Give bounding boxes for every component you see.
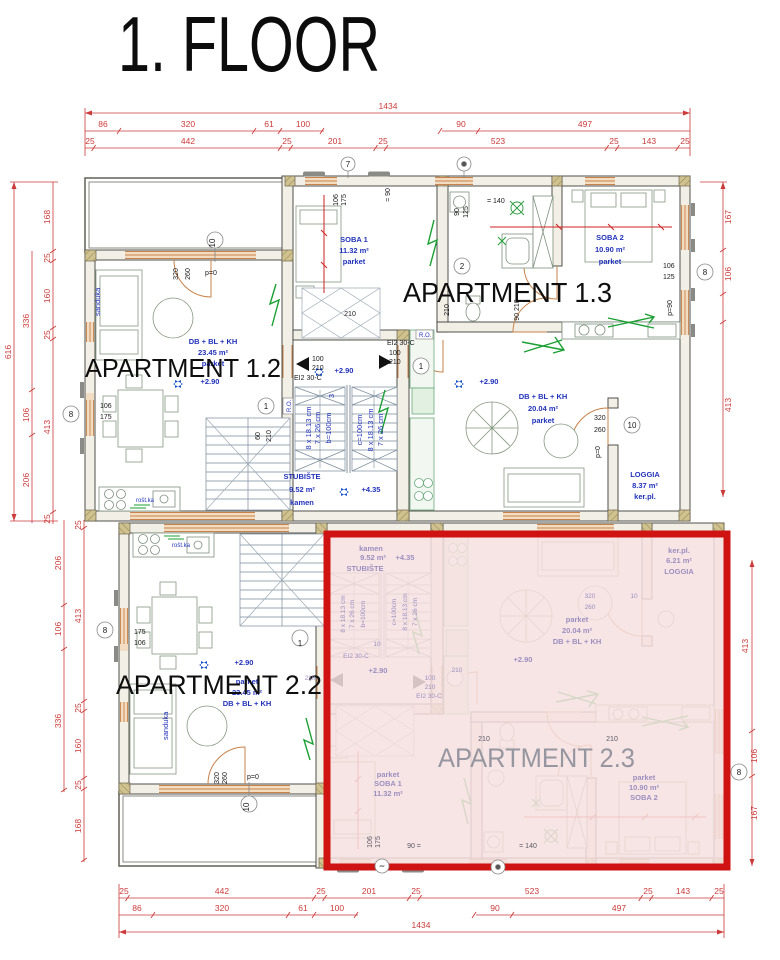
svg-text:167: 167 (723, 210, 733, 224)
svg-text:11.32 m²: 11.32 m² (339, 246, 369, 255)
svg-text:ker.pl.: ker.pl. (668, 546, 690, 555)
svg-text:20.04 m²: 20.04 m² (528, 404, 559, 413)
svg-text:DB + BL + KH: DB + BL + KH (189, 337, 238, 346)
svg-text:= 140: = 140 (519, 843, 537, 850)
svg-text:210: 210 (312, 365, 324, 372)
svg-text:8: 8 (69, 410, 74, 419)
svg-text:2: 2 (460, 262, 465, 271)
svg-text:1: 1 (419, 362, 424, 371)
svg-text:106: 106 (663, 263, 675, 270)
svg-text:sanduka: sanduka (93, 287, 102, 316)
svg-text:8: 8 (737, 768, 742, 777)
svg-text:9.52 m²: 9.52 m² (360, 553, 386, 562)
svg-text:143: 143 (676, 886, 690, 896)
svg-text:201: 201 (362, 886, 376, 896)
svg-text:260: 260 (585, 604, 596, 611)
svg-text:100: 100 (296, 119, 310, 129)
svg-text:parket: parket (633, 773, 656, 782)
svg-text:25: 25 (42, 253, 52, 263)
svg-text:61: 61 (298, 903, 308, 913)
svg-text:106: 106 (333, 194, 340, 206)
svg-text:106: 106 (53, 622, 63, 636)
svg-text:25: 25 (119, 886, 129, 896)
svg-text:SOBA 1: SOBA 1 (374, 779, 402, 788)
svg-text:1434: 1434 (412, 920, 431, 930)
svg-text:25: 25 (714, 886, 724, 896)
svg-text:8: 8 (703, 268, 708, 277)
svg-text:b=100cm: b=100cm (324, 412, 333, 443)
svg-text:p=0: p=0 (595, 446, 602, 458)
svg-text:175: 175 (375, 836, 382, 848)
svg-text:25: 25 (85, 136, 95, 146)
svg-text:61: 61 (264, 119, 274, 129)
svg-text:STUBIŠTE: STUBIŠTE (346, 564, 383, 573)
svg-text:336: 336 (21, 314, 31, 328)
svg-text:160: 160 (42, 289, 52, 303)
svg-text:8.37 m²: 8.37 m² (632, 481, 658, 490)
svg-text:p=0: p=0 (247, 774, 259, 781)
svg-text:DB + BL + KH: DB + BL + KH (223, 699, 272, 708)
svg-text:R.O.: R.O. (287, 399, 293, 412)
svg-text:90: 90 (490, 903, 500, 913)
svg-text:8 x 18.13 cm: 8 x 18.13 cm (402, 593, 409, 630)
svg-text:10: 10 (628, 421, 637, 430)
svg-text:b=100cm: b=100cm (360, 601, 367, 628)
svg-text:= 140: = 140 (487, 198, 505, 205)
svg-text:R.O.: R.O. (419, 333, 432, 339)
svg-text:7 x 26 cm: 7 x 26 cm (376, 414, 385, 447)
svg-text:10: 10 (373, 641, 381, 648)
svg-text:413: 413 (723, 398, 733, 412)
svg-text:25: 25 (42, 514, 52, 524)
svg-text:7 x 26 cm: 7 x 26 cm (412, 598, 419, 626)
svg-text:8 x 18.13 cm: 8 x 18.13 cm (366, 409, 375, 452)
svg-text:25: 25 (609, 136, 619, 146)
svg-text:APARTMENT 2.2: APARTMENT 2.2 (116, 670, 322, 700)
svg-text:1: 1 (264, 402, 269, 411)
svg-text:210: 210 (606, 736, 618, 743)
svg-text:DB + BL + KH: DB + BL + KH (519, 392, 568, 401)
svg-text:106: 106 (749, 749, 759, 763)
svg-text:106: 106 (100, 403, 112, 410)
svg-text:25: 25 (411, 886, 421, 896)
svg-text:106: 106 (134, 640, 146, 647)
svg-text:parket: parket (599, 257, 622, 266)
svg-text:168: 168 (42, 210, 52, 224)
svg-text:206: 206 (53, 556, 63, 570)
svg-text:86: 86 (132, 903, 142, 913)
svg-text:10: 10 (242, 802, 251, 811)
svg-text:125: 125 (463, 206, 470, 218)
svg-text:442: 442 (215, 886, 229, 896)
svg-text:8 x 18.13 cm: 8 x 18.13 cm (304, 407, 313, 450)
svg-text:106: 106 (21, 408, 31, 422)
svg-text:rošt.ka: rošt.ka (136, 498, 155, 504)
svg-text:7 x 26 cm: 7 x 26 cm (349, 600, 356, 628)
svg-text:8 x 18.13 cm: 8 x 18.13 cm (340, 595, 347, 632)
svg-text:143: 143 (642, 136, 656, 146)
svg-text:260: 260 (185, 268, 192, 280)
svg-text:25: 25 (680, 136, 690, 146)
svg-text:25: 25 (42, 330, 52, 340)
svg-text:25: 25 (282, 136, 292, 146)
svg-text:rošt.ka: rošt.ka (172, 543, 191, 549)
svg-text:8: 8 (103, 626, 108, 635)
svg-text:+2.90: +2.90 (335, 366, 354, 375)
svg-text:616: 616 (3, 345, 13, 359)
svg-text:90: 90 (454, 208, 461, 216)
svg-text:= 90: = 90 (385, 188, 392, 202)
svg-text:201: 201 (328, 136, 342, 146)
svg-text:LOGGIA: LOGGIA (664, 567, 694, 576)
svg-text:EI2 30-C: EI2 30-C (416, 693, 442, 700)
svg-text:160: 160 (73, 739, 83, 753)
svg-text:p=0: p=0 (205, 270, 217, 277)
svg-text:kamen: kamen (290, 498, 314, 507)
svg-text:320: 320 (594, 415, 606, 422)
svg-text:EI2 30-C: EI2 30-C (294, 375, 322, 382)
svg-text:125: 125 (663, 274, 675, 281)
svg-text:210: 210 (478, 736, 490, 743)
svg-text:175: 175 (341, 194, 348, 206)
svg-text:25: 25 (378, 136, 388, 146)
svg-text:parket: parket (532, 416, 555, 425)
svg-text:106: 106 (367, 836, 374, 848)
svg-text:SOBA 1: SOBA 1 (340, 235, 368, 244)
svg-text:p=90: p=90 (667, 300, 674, 316)
svg-text:c=100cm: c=100cm (355, 415, 364, 446)
svg-text:+2.90: +2.90 (514, 655, 533, 664)
svg-text:10: 10 (208, 238, 217, 247)
svg-text:+4.35: +4.35 (396, 553, 415, 562)
svg-text:210: 210 (305, 675, 316, 682)
svg-text:336: 336 (53, 714, 63, 728)
svg-text:3: 3 (327, 394, 336, 398)
svg-text:parket: parket (566, 615, 589, 624)
svg-text:APARTMENT 1.3: APARTMENT 1.3 (403, 277, 612, 308)
svg-text:6.21 m²: 6.21 m² (666, 556, 692, 565)
svg-text:175: 175 (134, 629, 146, 636)
svg-text:60: 60 (255, 432, 262, 440)
svg-text:DB + BL + KH: DB + BL + KH (553, 637, 602, 646)
svg-text:210: 210 (266, 430, 273, 442)
svg-text:parket: parket (377, 770, 400, 779)
svg-text:9.52 m²: 9.52 m² (289, 485, 315, 494)
svg-text:+2.90: +2.90 (235, 658, 254, 667)
svg-text:86: 86 (98, 119, 108, 129)
svg-text:90 =: 90 = (407, 843, 421, 850)
svg-text:EI2 30-C: EI2 30-C (387, 340, 415, 347)
svg-text:442: 442 (181, 136, 195, 146)
svg-text:523: 523 (491, 136, 505, 146)
svg-text:STUBIŠTE: STUBIŠTE (283, 472, 320, 481)
svg-text:168: 168 (73, 819, 83, 833)
svg-text:320: 320 (215, 903, 229, 913)
svg-text:parket: parket (343, 257, 366, 266)
svg-text:EI2 30-C: EI2 30-C (343, 653, 369, 660)
svg-text:210: 210 (425, 684, 436, 691)
svg-text:1434: 1434 (379, 101, 398, 111)
svg-text:320: 320 (181, 119, 195, 129)
svg-text:sanduka: sanduka (161, 711, 170, 740)
svg-text:260: 260 (222, 772, 229, 784)
svg-text:10: 10 (630, 593, 638, 600)
svg-text:10.90 m²: 10.90 m² (629, 783, 660, 792)
svg-text:APARTMENT 1.2: APARTMENT 1.2 (85, 353, 281, 383)
svg-text:413: 413 (740, 639, 750, 653)
svg-text:LOGGIA: LOGGIA (630, 470, 660, 479)
svg-text:206: 206 (21, 473, 31, 487)
svg-text:106: 106 (723, 267, 733, 281)
svg-text:c=100cm: c=100cm (391, 599, 398, 626)
svg-text:100: 100 (389, 350, 401, 357)
svg-text:320: 320 (214, 772, 221, 784)
svg-text:497: 497 (578, 119, 592, 129)
svg-text:25: 25 (73, 520, 83, 530)
svg-text:25: 25 (316, 886, 326, 896)
svg-text:25: 25 (643, 886, 653, 896)
svg-text:167: 167 (749, 806, 759, 820)
svg-text:+2.90: +2.90 (369, 666, 388, 675)
svg-text:APARTMENT 2.3: APARTMENT 2.3 (438, 743, 635, 773)
svg-text:90: 90 (456, 119, 466, 129)
svg-text:497: 497 (612, 903, 626, 913)
svg-text:413: 413 (73, 609, 83, 623)
svg-text:1. FLOOR: 1. FLOOR (118, 0, 380, 88)
svg-text:10.90 m²: 10.90 m² (595, 245, 626, 254)
svg-text:100: 100 (312, 356, 324, 363)
svg-text:SOBA 2: SOBA 2 (630, 793, 658, 802)
svg-text:~: ~ (380, 862, 385, 871)
svg-text:175: 175 (100, 414, 112, 421)
svg-text:25: 25 (73, 780, 83, 790)
svg-text:25: 25 (73, 703, 83, 713)
svg-text:100: 100 (330, 903, 344, 913)
svg-text:210: 210 (452, 667, 463, 674)
svg-text:+2.90: +2.90 (480, 377, 499, 386)
svg-text:210: 210 (344, 311, 356, 318)
svg-text:413: 413 (42, 420, 52, 434)
svg-text:1: 1 (298, 639, 303, 648)
svg-text:20.04 m²: 20.04 m² (562, 626, 593, 635)
svg-text:7 x 26 cm: 7 x 26 cm (313, 412, 322, 445)
svg-text:ker.pl.: ker.pl. (634, 492, 656, 501)
svg-text:100: 100 (425, 675, 436, 682)
svg-text:320: 320 (585, 593, 596, 600)
svg-text:7: 7 (346, 160, 351, 169)
svg-text:SOBA 2: SOBA 2 (596, 233, 624, 242)
svg-text:kamen: kamen (359, 544, 383, 553)
svg-text:+4.35: +4.35 (362, 485, 381, 494)
svg-text:11.32 m²: 11.32 m² (373, 789, 403, 798)
svg-text:210: 210 (389, 359, 401, 366)
svg-text:260: 260 (594, 427, 606, 434)
svg-text:523: 523 (525, 886, 539, 896)
svg-text:320: 320 (173, 268, 180, 280)
